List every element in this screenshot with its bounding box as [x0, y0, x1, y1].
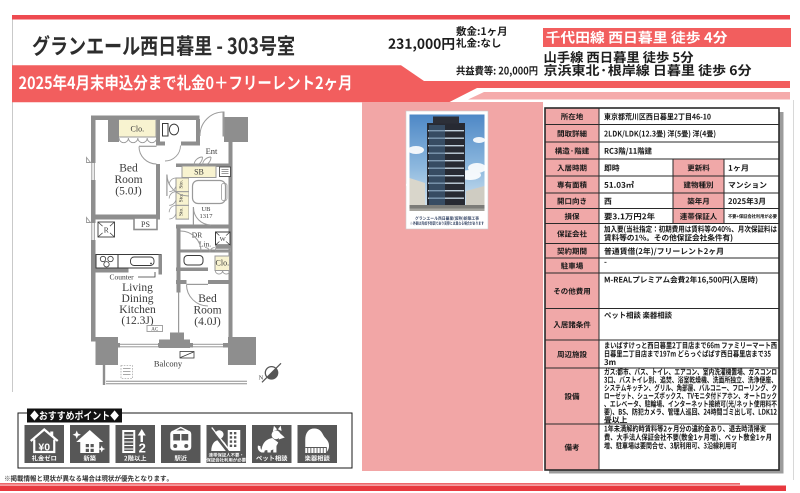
- svg-text:Counter: Counter: [110, 273, 135, 282]
- svg-text:AC: AC: [151, 328, 159, 333]
- svg-text:Bed: Bed: [119, 163, 138, 175]
- svg-text:Clo.: Clo.: [131, 125, 145, 134]
- svg-text:R: R: [104, 226, 109, 235]
- svg-text:Sto.: Sto.: [179, 179, 185, 188]
- svg-text:W: W: [220, 236, 227, 243]
- svg-text:Room: Room: [114, 174, 142, 186]
- svg-text:SB: SB: [194, 168, 204, 177]
- svg-text:2: 2: [139, 441, 146, 456]
- svg-text:Sto.: Sto.: [179, 207, 185, 216]
- svg-text:(5.0J): (5.0J): [115, 186, 142, 198]
- svg-text:Room: Room: [193, 305, 221, 317]
- svg-text:Ent: Ent: [206, 146, 218, 156]
- svg-text:Clo.: Clo.: [216, 259, 230, 268]
- svg-text:UB: UB: [201, 206, 211, 213]
- svg-text:(4.0J): (4.0J): [194, 316, 221, 328]
- svg-text:N: N: [259, 375, 264, 382]
- svg-text:Balcony: Balcony: [154, 359, 183, 369]
- svg-text:Bed: Bed: [198, 293, 217, 305]
- svg-text:¥0: ¥0: [38, 442, 50, 454]
- svg-text:PS: PS: [141, 220, 150, 229]
- svg-text:1317: 1317: [200, 213, 214, 220]
